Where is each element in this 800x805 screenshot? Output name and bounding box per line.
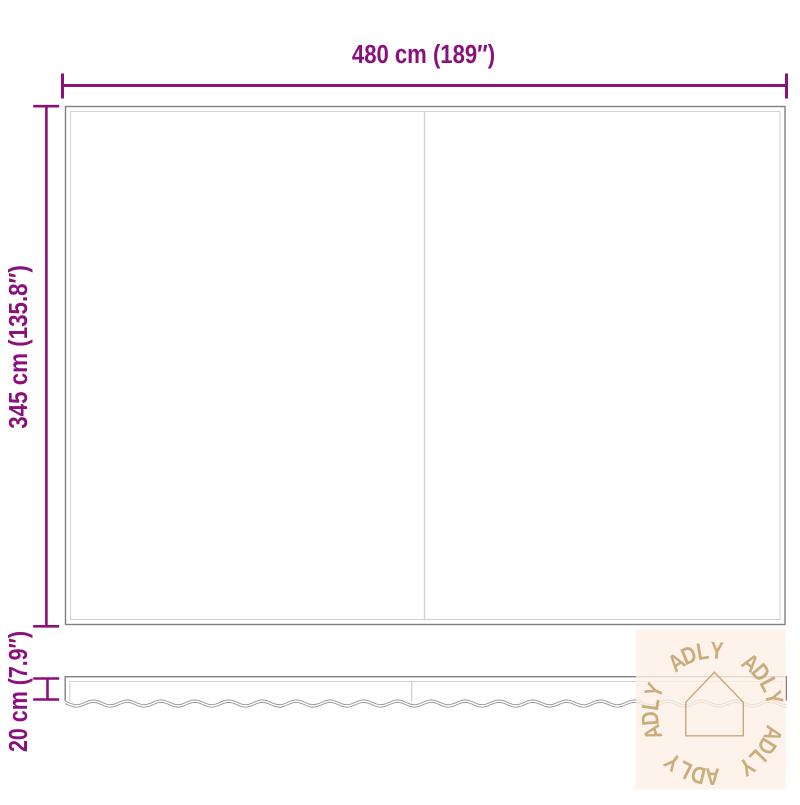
svg-text:Y: Y	[710, 636, 725, 664]
svg-text:D: D	[636, 710, 664, 726]
svg-text:20 cm (7.9″): 20 cm (7.9″)	[4, 631, 33, 752]
svg-text:345 cm (135.8″): 345 cm (135.8″)	[4, 265, 33, 429]
svg-text:480 cm (189″): 480 cm (189″)	[352, 40, 495, 69]
